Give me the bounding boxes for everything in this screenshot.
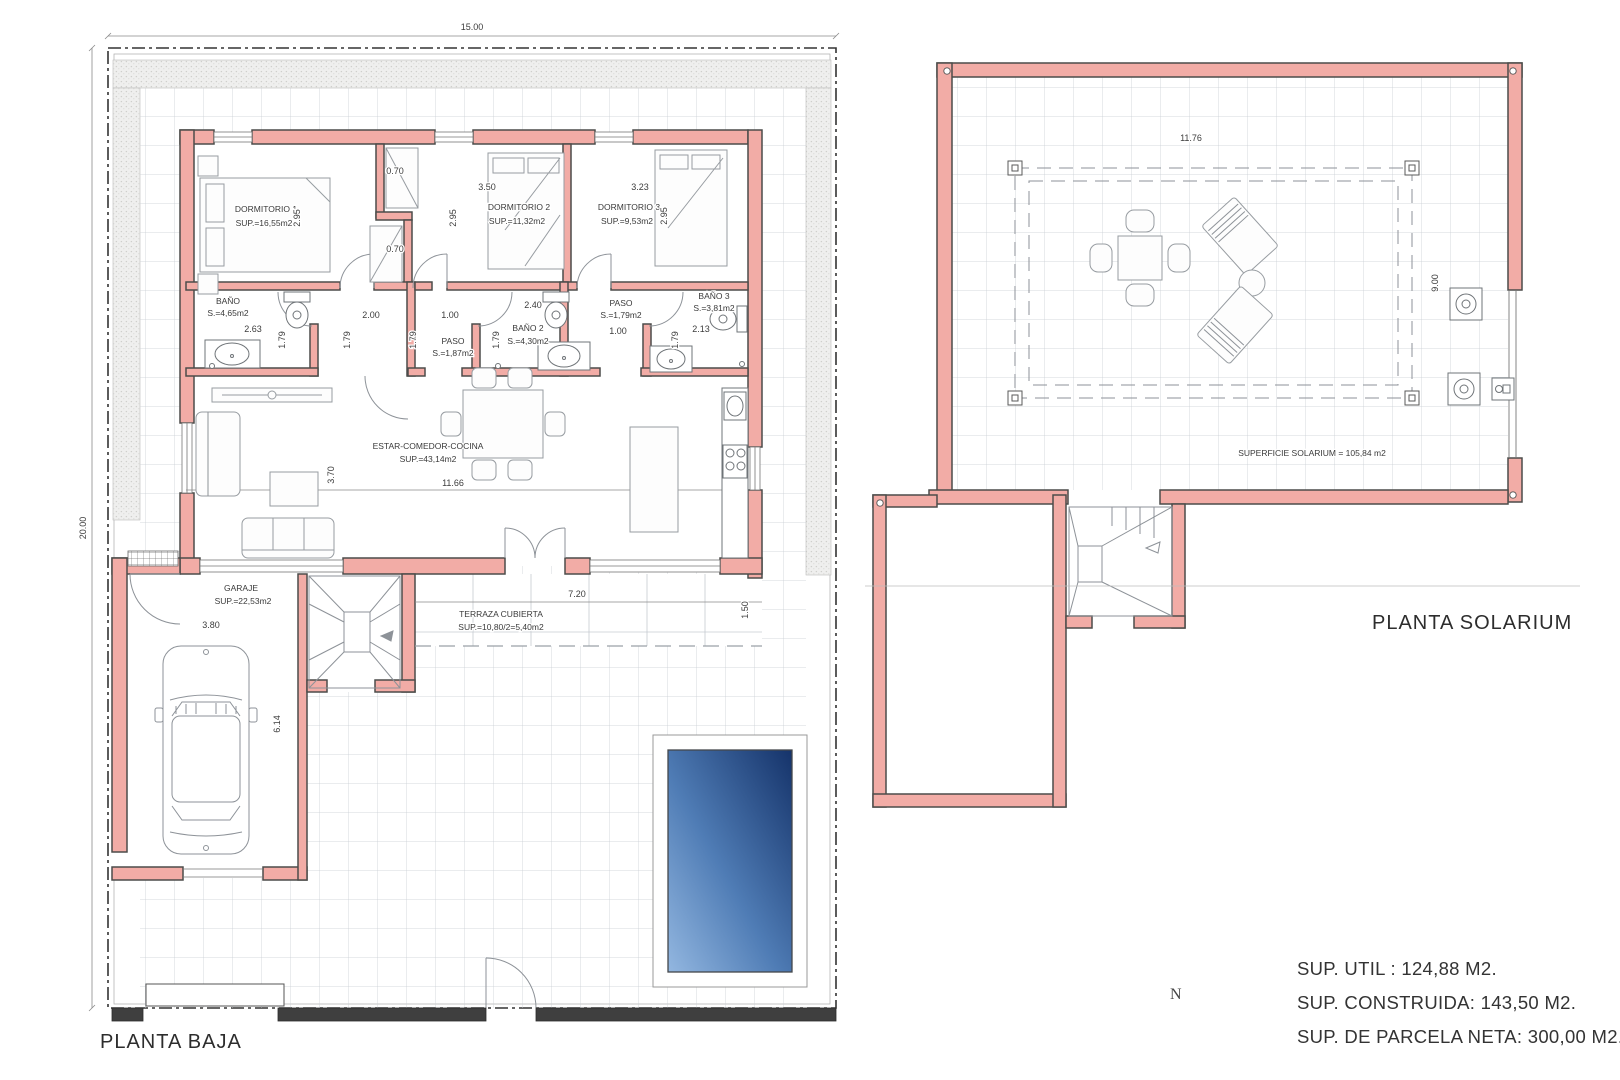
room-label-dorm2: DORMITORIO 2 — [488, 202, 550, 212]
dim-323: 3.23 — [631, 182, 649, 192]
dim-179-b: 1.79 — [342, 331, 352, 349]
dim-614: 6.14 — [272, 715, 282, 733]
summary-construida: SUP. CONSTRUIDA: 143,50 M2. — [1297, 992, 1576, 1013]
dim-350: 3.50 — [478, 182, 496, 192]
swimming-pool — [653, 735, 807, 987]
sofa-icon — [242, 518, 334, 558]
dim-240: 2.40 — [524, 300, 542, 310]
wardrobe-icon-1 — [386, 148, 418, 208]
room-label-paso1: PASO — [442, 336, 465, 346]
solarium-area-label: SUPERFICIE SOLARIUM = 105,84 m2 — [1238, 448, 1386, 458]
room-area-bano3: S.=3,81m2 — [693, 303, 735, 313]
room-label-bano2: BAÑO 2 — [512, 323, 543, 333]
dim-295-c: 2.95 — [659, 207, 669, 225]
sink-icon-bano2 — [538, 342, 590, 370]
dim-179-e: 1.79 — [670, 331, 680, 349]
plan-drawing: 15.00 20.00 DORMITORIO 1 SUP.=16,55m2 2.… — [0, 0, 1620, 1080]
sink-icon-bano3 — [650, 346, 692, 372]
room-label-dorm3: DORMITORIO 3 — [598, 202, 660, 212]
room-label-bano1: BAÑO — [216, 296, 240, 306]
dim-295-a: 2.95 — [292, 209, 302, 227]
dim-263: 2.63 — [244, 324, 262, 334]
kitchen-counter-icon — [722, 388, 748, 558]
dim-100-b: 1.00 — [609, 326, 627, 336]
dim-070-a: 0.70 — [386, 166, 404, 176]
dim-370: 3.70 — [326, 466, 336, 484]
solarium-plan: 11.76 9.00 SUPERFICIE SOLARIUM = 105,84 … — [865, 63, 1580, 807]
car-icon — [155, 646, 257, 854]
toilet-icon-bano2 — [543, 292, 569, 328]
dim-150: 1.50 — [740, 601, 750, 619]
room-area-dorm1: SUP.=16,55m2 — [236, 218, 293, 228]
coffee-table-icon — [270, 472, 318, 506]
toilet-icon-bano1 — [284, 292, 310, 328]
solarium-lower-room — [886, 507, 1053, 795]
dim-179-a: 1.79 — [277, 331, 287, 349]
room-area-dorm2: SUP.=11,32m2 — [489, 216, 545, 226]
dim-720: 7.20 — [568, 589, 586, 599]
room-area-paso2: S.=1,79m2 — [600, 310, 642, 320]
outdoor-shower-icon-1 — [1450, 288, 1482, 320]
dim-070-b: 0.70 — [386, 244, 404, 254]
room-area-dorm3: SUP.=9,53m2 — [601, 216, 653, 226]
room-label-paso2: PASO — [610, 298, 633, 308]
dim-parcel-height: 20.00 — [78, 517, 88, 540]
summary-util: SUP. UTIL : 124,88 M2. — [1297, 958, 1497, 979]
dim-solarium-height: 9.00 — [1430, 274, 1440, 292]
room-area-paso1: S.=1,87m2 — [432, 348, 474, 358]
garage-gate — [146, 984, 284, 1006]
title-planta-solarium: PLANTA SOLARIUM — [1372, 612, 1572, 634]
tv-unit-icon — [212, 388, 332, 402]
room-area-garaje: SUP.=22,53m2 — [215, 596, 272, 606]
dim-parcel-width: 15.00 — [461, 22, 484, 32]
room-area-terraza: SUP.=10,80/2=5,40m2 — [458, 622, 544, 632]
dim-295-b: 2.95 — [448, 209, 458, 227]
dim-179-c: 1.79 — [408, 331, 418, 349]
solarium-tiles — [952, 77, 1508, 490]
room-label-garaje: GARAJE — [224, 583, 258, 593]
room-area-bano1: S.=4,65m2 — [207, 308, 249, 318]
outdoor-shower-icon-2 — [1448, 373, 1480, 405]
summary-parcela: SUP. DE PARCELA NETA: 300,00 M2. — [1297, 1026, 1620, 1047]
dim-200: 2.00 — [362, 310, 380, 320]
room-label-estar: ESTAR-COMEDOR-COCINA — [373, 441, 484, 451]
ground-floor-plan: 15.00 20.00 DORMITORIO 1 SUP.=16,55m2 2.… — [78, 22, 839, 1021]
room-label-terraza: TERRAZA CUBIERTA — [459, 609, 543, 619]
dim-solarium-width: 11.76 — [1180, 133, 1202, 143]
wall-unit-icon — [1492, 378, 1514, 400]
wardrobe-icon-2 — [370, 226, 402, 282]
room-area-estar: SUP.=43,14m2 — [400, 454, 457, 464]
area-summary: SUP. UTIL : 124,88 M2. SUP. CONSTRUIDA: … — [1297, 958, 1620, 1047]
dim-213: 2.13 — [692, 324, 710, 334]
pool-water — [668, 750, 792, 972]
dim-100-a: 1.00 — [441, 310, 459, 320]
armchair-icon — [196, 412, 240, 496]
dim-179-d: 1.79 — [491, 331, 501, 349]
solarium-stair-interior — [1066, 504, 1172, 618]
dim-380: 3.80 — [202, 620, 220, 630]
kitchen-island-icon — [630, 427, 678, 532]
north-indicator: N — [1170, 986, 1182, 1003]
dim-1166: 11.66 — [442, 478, 464, 488]
title-planta-baja: PLANTA BAJA — [100, 1031, 242, 1053]
garage-vent-grille — [128, 551, 178, 566]
room-label-dorm1: DORMITORIO 1 — [235, 204, 297, 214]
room-label-bano3: BAÑO 3 — [698, 291, 729, 301]
room-area-bano2: S.=4,30m2 — [507, 336, 549, 346]
floor-plan-sheet: 15.00 20.00 DORMITORIO 1 SUP.=16,55m2 2.… — [0, 0, 1620, 1080]
